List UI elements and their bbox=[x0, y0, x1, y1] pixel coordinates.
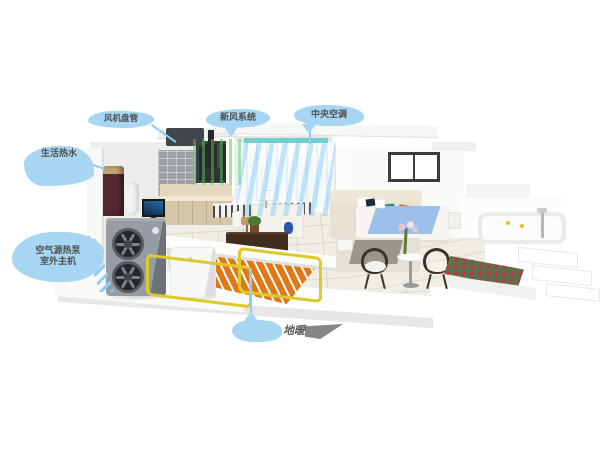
fan-hub bbox=[124, 273, 132, 281]
bathtub bbox=[478, 212, 566, 244]
shower-head bbox=[537, 208, 547, 213]
pointer-tip bbox=[224, 127, 238, 137]
bistro-table-stem bbox=[409, 261, 412, 283]
brand-badge-icon bbox=[152, 227, 159, 234]
shower-fixture bbox=[541, 210, 544, 238]
callout-floor-heating-text: 地暖 bbox=[283, 322, 313, 338]
callout-floor-heating-bubble bbox=[232, 320, 282, 342]
bed-pillow bbox=[366, 198, 376, 206]
terrace-step bbox=[518, 247, 578, 268]
ac-vent-grille bbox=[244, 138, 328, 143]
heat-pump-home-illustration: 风机盘管 新风系统 中央空调 生活热水 空气源热泵 室外主机 地暖 bbox=[0, 0, 600, 450]
fan-icon bbox=[112, 261, 144, 293]
callout-hot-water: 生活热水 bbox=[24, 146, 94, 186]
callout-heat-pump-line1: 空气源热泵 bbox=[35, 246, 80, 257]
bedroom-window bbox=[388, 152, 440, 182]
roof-slab-right bbox=[432, 142, 476, 151]
callout-fan-coil: 风机盘管 bbox=[88, 111, 154, 128]
callout-heat-pump-line2: 室外主机 bbox=[40, 257, 76, 268]
fresh-air-flow bbox=[193, 139, 245, 185]
cool-air-flow bbox=[236, 142, 336, 216]
daybed-pillow bbox=[338, 239, 353, 250]
callout-heat-pump: 空气源热泵 室外主机 bbox=[12, 232, 104, 282]
nightstand bbox=[448, 212, 461, 229]
chair-cushion bbox=[427, 261, 448, 272]
bathroom-upper-step bbox=[466, 184, 530, 198]
pointer-tip bbox=[302, 124, 316, 134]
floor-standing-water-tank bbox=[103, 166, 124, 216]
water-purifier bbox=[126, 182, 139, 215]
rubber-duck bbox=[506, 221, 510, 225]
fan-icon bbox=[112, 228, 144, 260]
fan-hub bbox=[124, 240, 132, 248]
terrace-step bbox=[532, 265, 592, 286]
rubber-duck bbox=[520, 224, 524, 228]
tv-screen bbox=[142, 199, 165, 217]
pointer-line bbox=[250, 268, 252, 314]
chair-cushion bbox=[365, 261, 386, 272]
flower-bloom bbox=[396, 220, 420, 236]
upper-cabinet bbox=[160, 184, 232, 196]
callout-central-ac: 中央空调 bbox=[294, 105, 364, 126]
bistro-table-base bbox=[403, 283, 419, 288]
bonsai-plant bbox=[248, 216, 261, 226]
